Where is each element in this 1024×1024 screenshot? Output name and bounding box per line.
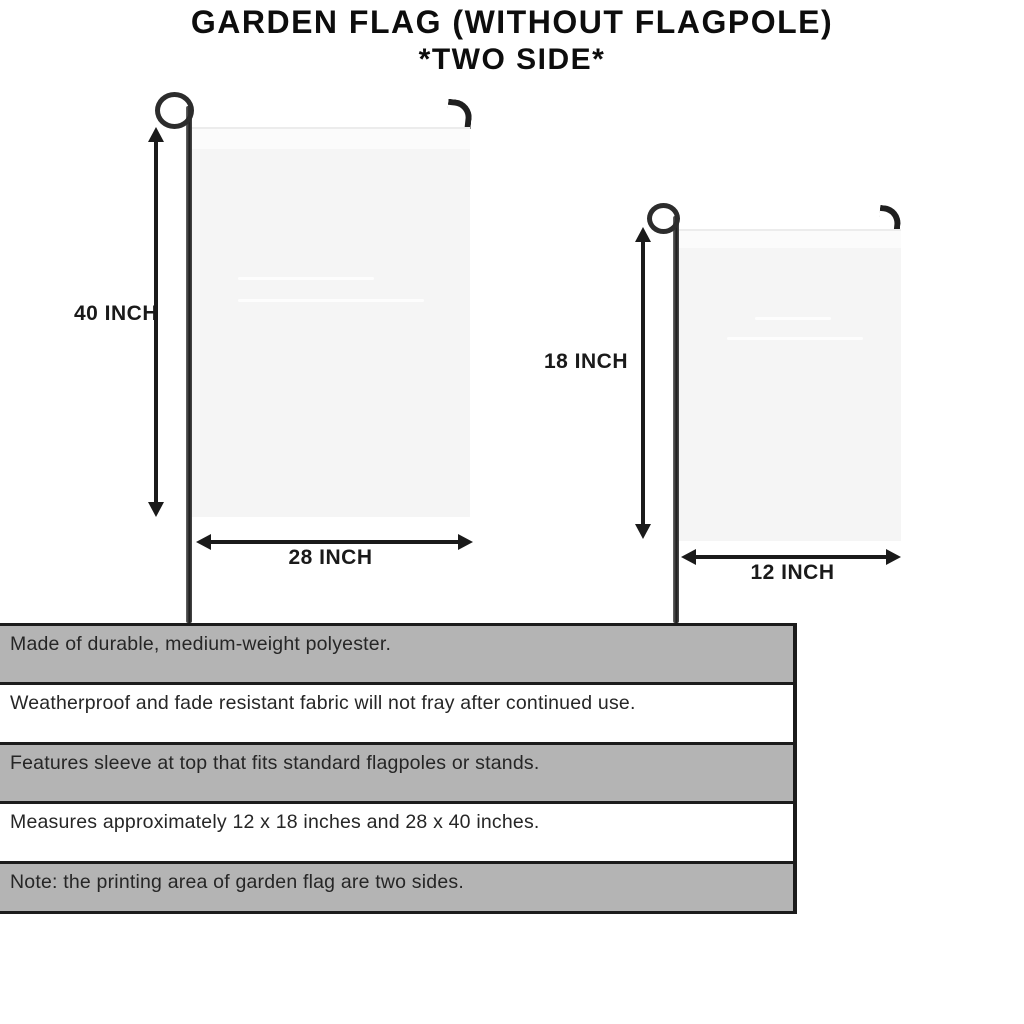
feature-row: Measures approximately 12 x 18 inches an…: [0, 801, 793, 861]
feature-text: Weatherproof and fade resistant fabric w…: [10, 692, 636, 714]
feature-row: Weatherproof and fade resistant fabric w…: [0, 682, 793, 742]
title-block: GARDEN FLAG (WITHOUT FLAGPOLE) *TWO SIDE…: [0, 4, 1024, 77]
height-dimension-arrow: [635, 227, 651, 539]
feature-list: Made of durable, medium-weight polyester…: [0, 623, 797, 914]
pole-loop-icon: [155, 92, 194, 129]
flag-canvas: [192, 127, 470, 517]
arrowhead-down-icon: [148, 502, 164, 517]
arrowhead-left-icon: [196, 534, 211, 550]
dimension-line: [211, 540, 458, 544]
arrowhead-right-icon: [886, 549, 901, 565]
flag-faint-print: [238, 277, 374, 280]
pole-hook-icon: [878, 205, 902, 232]
height-dimension-label: 40 INCH: [48, 302, 158, 326]
flag-faint-print: [238, 299, 424, 302]
flag-faint-print: [755, 317, 831, 320]
pole-loop-icon: [647, 203, 680, 234]
width-dimension-label: 12 INCH: [700, 561, 885, 585]
page-title: GARDEN FLAG (WITHOUT FLAGPOLE): [0, 4, 1024, 41]
height-dimension-label: 18 INCH: [518, 350, 628, 374]
feature-text: Measures approximately 12 x 18 inches an…: [10, 811, 540, 833]
feature-row: Features sleeve at top that fits standar…: [0, 742, 793, 801]
flag-faint-print: [727, 337, 863, 340]
feature-text: Note: the printing area of garden flag a…: [10, 871, 464, 893]
dimension-line: [696, 555, 886, 559]
flag-sleeve: [192, 129, 470, 149]
garden-flag-infographic: GARDEN FLAG (WITHOUT FLAGPOLE) *TWO SIDE…: [0, 0, 1024, 1024]
arrowhead-up-icon: [635, 227, 651, 242]
arrowhead-down-icon: [635, 524, 651, 539]
page-subtitle: *TWO SIDE*: [0, 43, 1024, 78]
width-dimension-label: 28 INCH: [238, 546, 423, 570]
flag-sleeve: [679, 231, 901, 248]
feature-text: Made of durable, medium-weight polyester…: [10, 633, 391, 655]
arrowhead-up-icon: [148, 127, 164, 142]
feature-row: Made of durable, medium-weight polyester…: [0, 623, 793, 682]
feature-row: Note: the printing area of garden flag a…: [0, 861, 793, 914]
dimension-line: [641, 242, 645, 524]
arrowhead-right-icon: [458, 534, 473, 550]
flag-canvas: [679, 229, 901, 541]
feature-text: Features sleeve at top that fits standar…: [10, 752, 539, 774]
pole-hook-icon: [446, 99, 474, 129]
arrowhead-left-icon: [681, 549, 696, 565]
